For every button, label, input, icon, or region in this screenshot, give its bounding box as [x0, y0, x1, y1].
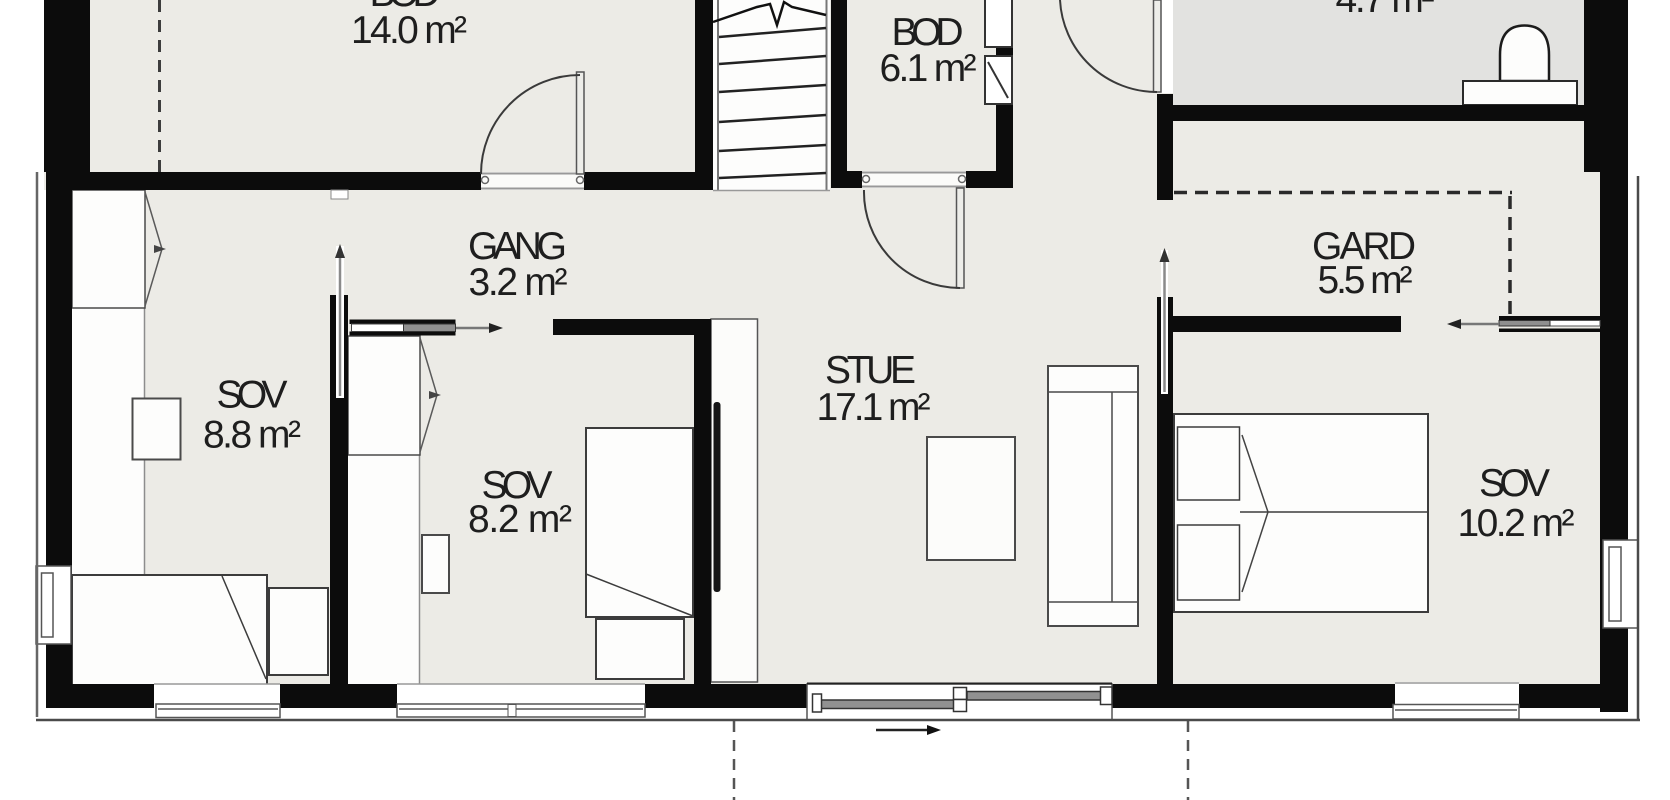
- svg-text:SOV: SOV: [1479, 462, 1550, 505]
- svg-text:5.5 m²: 5.5 m²: [1318, 259, 1413, 302]
- svg-text:8.2 m²: 8.2 m²: [468, 498, 572, 541]
- svg-text:SOV: SOV: [217, 374, 288, 417]
- svg-text:17.1 m²: 17.1 m²: [817, 386, 931, 429]
- svg-text:6.1 m²: 6.1 m²: [880, 47, 977, 90]
- svg-text:4.7 m²: 4.7 m²: [1336, 0, 1435, 21]
- svg-text:14.0 m²: 14.0 m²: [351, 9, 467, 52]
- svg-text:10.2 m²: 10.2 m²: [1458, 502, 1575, 545]
- svg-text:3.2 m²: 3.2 m²: [469, 261, 568, 304]
- svg-text:8.8 m²: 8.8 m²: [203, 414, 301, 457]
